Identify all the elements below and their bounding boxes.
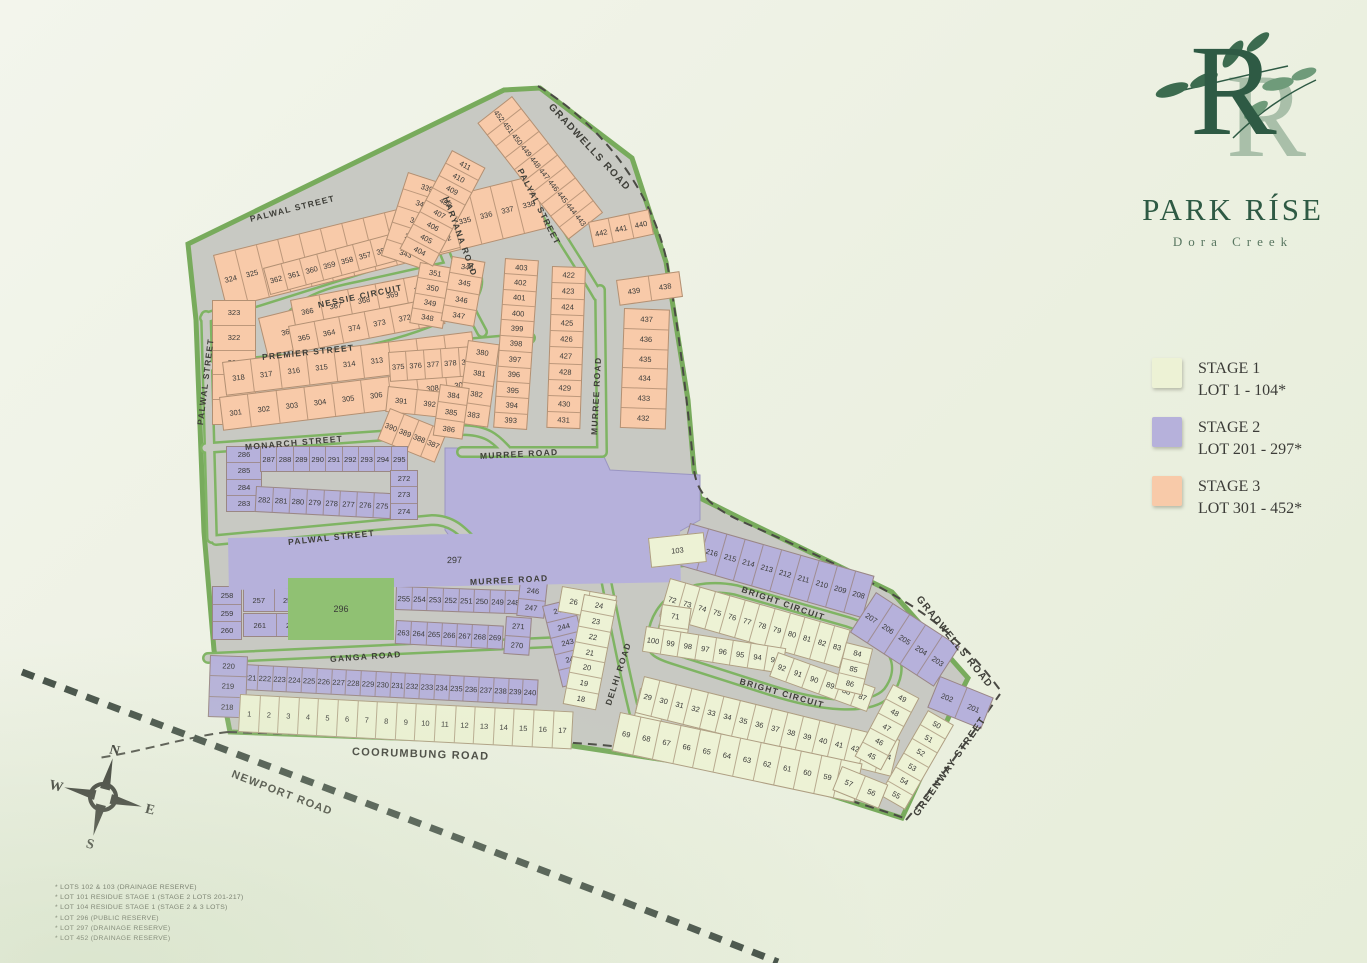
parkrise-logo: R R PARK RÍSE Dora Creek — [1108, 18, 1358, 250]
legend-swatch — [1152, 358, 1182, 388]
lot-249: 249 — [490, 590, 506, 613]
lot-7: 7 — [356, 701, 377, 738]
lot-438: 438 — [648, 272, 682, 300]
footnote-line: * LOT 101 RESIDUE STAGE 1 (STAGE 2 LOTS … — [55, 893, 244, 903]
lot-233: 233 — [419, 674, 435, 699]
lot-435: 435 — [623, 349, 668, 370]
lot-267: 267 — [457, 624, 473, 647]
lot-223: 223 — [272, 667, 288, 692]
lot-288: 288 — [277, 447, 293, 471]
lot-282: 282 — [256, 487, 274, 512]
lot-291: 291 — [326, 447, 342, 471]
lot-266: 266 — [442, 623, 458, 646]
lot-12: 12 — [454, 706, 475, 743]
lot-236: 236 — [464, 677, 480, 702]
lot-251: 251 — [459, 589, 475, 612]
lot-422: 422 — [552, 267, 585, 284]
footnote-line: * LOT 297 (DRAINAGE RESERVE) — [55, 924, 244, 934]
lot-305: 305 — [333, 381, 365, 416]
lot-292: 292 — [343, 447, 359, 471]
lot-424: 424 — [551, 299, 584, 316]
legend-swatch — [1152, 476, 1182, 506]
lot-2: 2 — [259, 696, 280, 733]
lot-229: 229 — [361, 671, 377, 696]
legend-item-stage-3: STAGE 3LOT 301 - 452* — [1152, 476, 1302, 519]
lot-261: 261 — [244, 614, 277, 636]
lot-323: 323 — [213, 301, 255, 326]
lot-278: 278 — [323, 491, 341, 516]
lot-block: 258259260 — [212, 586, 242, 640]
lot-386: 386 — [434, 419, 464, 439]
lot-377: 377 — [424, 349, 443, 378]
legend-swatch — [1152, 417, 1182, 447]
lot-295: 295 — [392, 447, 407, 471]
lot-254: 254 — [412, 588, 428, 611]
lot-block: 272273274 — [390, 470, 418, 520]
estate-plan-page: 3243253263273283293303313323333343353363… — [0, 0, 1367, 963]
lot-281: 281 — [273, 488, 291, 513]
lot-234: 234 — [434, 675, 450, 700]
lot-304: 304 — [304, 384, 336, 419]
lot-274: 274 — [391, 504, 417, 519]
lot-263: 263 — [396, 621, 412, 644]
compass-s: S — [84, 837, 95, 850]
stage-legend: STAGE 1LOT 1 - 104*STAGE 2LOT 201 - 297*… — [1152, 358, 1302, 536]
compass-n: N — [108, 745, 121, 759]
lot-227: 227 — [331, 670, 347, 695]
lot-296: 296 — [288, 578, 394, 640]
lot-265: 265 — [426, 623, 442, 646]
lot-235: 235 — [449, 676, 465, 701]
lot-1: 1 — [239, 695, 260, 732]
lot-255: 255 — [396, 587, 412, 610]
lot-226: 226 — [316, 669, 332, 694]
lot-429: 429 — [548, 380, 581, 397]
lot-block: 255254253252251250249248 — [395, 586, 522, 614]
lot-432: 432 — [621, 408, 666, 428]
lot-16: 16 — [533, 710, 554, 747]
lot-260: 260 — [213, 622, 241, 639]
plan-footnotes: * LOTS 102 & 103 (DRAINAGE RESERVE)* LOT… — [55, 883, 244, 944]
compass-w: W — [48, 778, 65, 796]
lot-block: 422423424425426427428429430431 — [546, 266, 586, 429]
lot-436: 436 — [624, 329, 669, 350]
lot-322: 322 — [213, 326, 255, 351]
lot-293: 293 — [359, 447, 375, 471]
footnote-line: * LOTS 102 & 103 (DRAINAGE RESERVE) — [55, 883, 244, 893]
lot-247: 247 — [517, 599, 545, 618]
lot-279: 279 — [306, 490, 324, 515]
lot-375: 375 — [389, 352, 408, 381]
lot-302: 302 — [248, 391, 280, 426]
lot-285: 285 — [227, 463, 261, 479]
lot-430: 430 — [548, 396, 581, 413]
lot-280: 280 — [289, 489, 307, 514]
lot-222: 222 — [257, 666, 273, 691]
lot-376: 376 — [406, 350, 425, 379]
lot-252: 252 — [443, 589, 459, 612]
lot-437: 437 — [624, 309, 669, 330]
legend-label: STAGE 2LOT 201 - 297* — [1198, 417, 1302, 460]
lot-393: 393 — [494, 412, 527, 429]
compass-rose-icon: N E S W — [48, 745, 158, 850]
lot-225: 225 — [302, 668, 318, 693]
lot-103: 103 — [649, 533, 706, 566]
lot-11: 11 — [435, 705, 456, 742]
lot-378: 378 — [441, 348, 460, 377]
lot-238: 238 — [493, 678, 509, 703]
lot-block: 296 — [288, 578, 394, 640]
lot-block: 437436435434433432 — [620, 308, 670, 430]
lot-224: 224 — [287, 667, 303, 692]
lot-239: 239 — [508, 679, 524, 704]
footnote-line: * LOT 104 RESIDUE STAGE 1 (STAGE 2 & 3 L… — [55, 903, 244, 913]
lot-273: 273 — [391, 487, 417, 503]
lot-427: 427 — [550, 347, 583, 364]
legend-label: STAGE 3LOT 301 - 452* — [1198, 476, 1302, 519]
lot-318: 318 — [223, 359, 255, 394]
lot-13: 13 — [474, 707, 495, 744]
lot-230: 230 — [375, 672, 391, 697]
legend-item-stage-1: STAGE 1LOT 1 - 104* — [1152, 358, 1302, 401]
lot-250: 250 — [474, 590, 490, 613]
lot-237: 237 — [478, 677, 494, 702]
lot-275: 275 — [374, 493, 391, 518]
lot-290: 290 — [310, 447, 326, 471]
lot-277: 277 — [340, 491, 358, 516]
lot-294: 294 — [375, 447, 391, 471]
lot-289: 289 — [294, 447, 310, 471]
lot-9: 9 — [396, 703, 417, 740]
lot-5: 5 — [317, 699, 338, 736]
lot-271: 271 — [506, 617, 531, 637]
logo-subtitle: Dora Creek — [1108, 234, 1358, 250]
lot-257: 257 — [244, 589, 275, 611]
lot-10: 10 — [415, 704, 436, 741]
lot-block: 287288289290291292293294295 — [260, 446, 408, 472]
lot-17: 17 — [552, 711, 572, 748]
lot-block: 103 — [648, 532, 707, 568]
lot-253: 253 — [427, 588, 443, 611]
lot-268: 268 — [472, 625, 488, 648]
lot-423: 423 — [552, 283, 585, 300]
logo-r-letter: R — [1190, 26, 1277, 156]
lot-301: 301 — [220, 394, 252, 429]
lot-15: 15 — [513, 709, 534, 746]
lot-220: 220 — [210, 656, 247, 678]
compass-e: E — [144, 802, 157, 819]
lot-3: 3 — [278, 697, 299, 734]
lot-269: 269 — [487, 626, 502, 649]
lot-287: 287 — [261, 447, 277, 471]
footnote-line: * LOT 452 (DRAINAGE RESERVE) — [55, 934, 244, 944]
lot-431: 431 — [547, 412, 580, 428]
lot-264: 264 — [411, 622, 427, 645]
lot-block: 271270 — [503, 616, 532, 656]
lot-433: 433 — [622, 388, 667, 409]
lot-276: 276 — [357, 492, 375, 517]
lot-8: 8 — [376, 702, 397, 739]
logo-title: PARK RÍSE — [1108, 192, 1358, 228]
lot-240: 240 — [523, 680, 538, 705]
lot-270: 270 — [504, 636, 529, 655]
lot-228: 228 — [346, 670, 362, 695]
lot-425: 425 — [551, 315, 584, 332]
lot-272: 272 — [391, 471, 417, 487]
lot-232: 232 — [405, 674, 421, 699]
lot-426: 426 — [550, 331, 583, 348]
lot-303: 303 — [276, 388, 308, 423]
lot-434: 434 — [622, 368, 667, 389]
lot-428: 428 — [549, 364, 582, 381]
lot-259: 259 — [213, 605, 241, 623]
lot-439: 439 — [617, 276, 652, 304]
legend-item-stage-2: STAGE 2LOT 201 - 297* — [1152, 417, 1302, 460]
lot-4: 4 — [298, 698, 319, 735]
lot-6: 6 — [337, 700, 358, 737]
lot-14: 14 — [493, 708, 514, 745]
footnote-line: * LOT 296 (PUBLIC RESERVE) — [55, 914, 244, 924]
logo-monogram: R R — [1108, 18, 1358, 178]
lot-231: 231 — [390, 673, 406, 698]
lot-440: 440 — [629, 210, 653, 237]
legend-label: STAGE 1LOT 1 - 104* — [1198, 358, 1286, 401]
